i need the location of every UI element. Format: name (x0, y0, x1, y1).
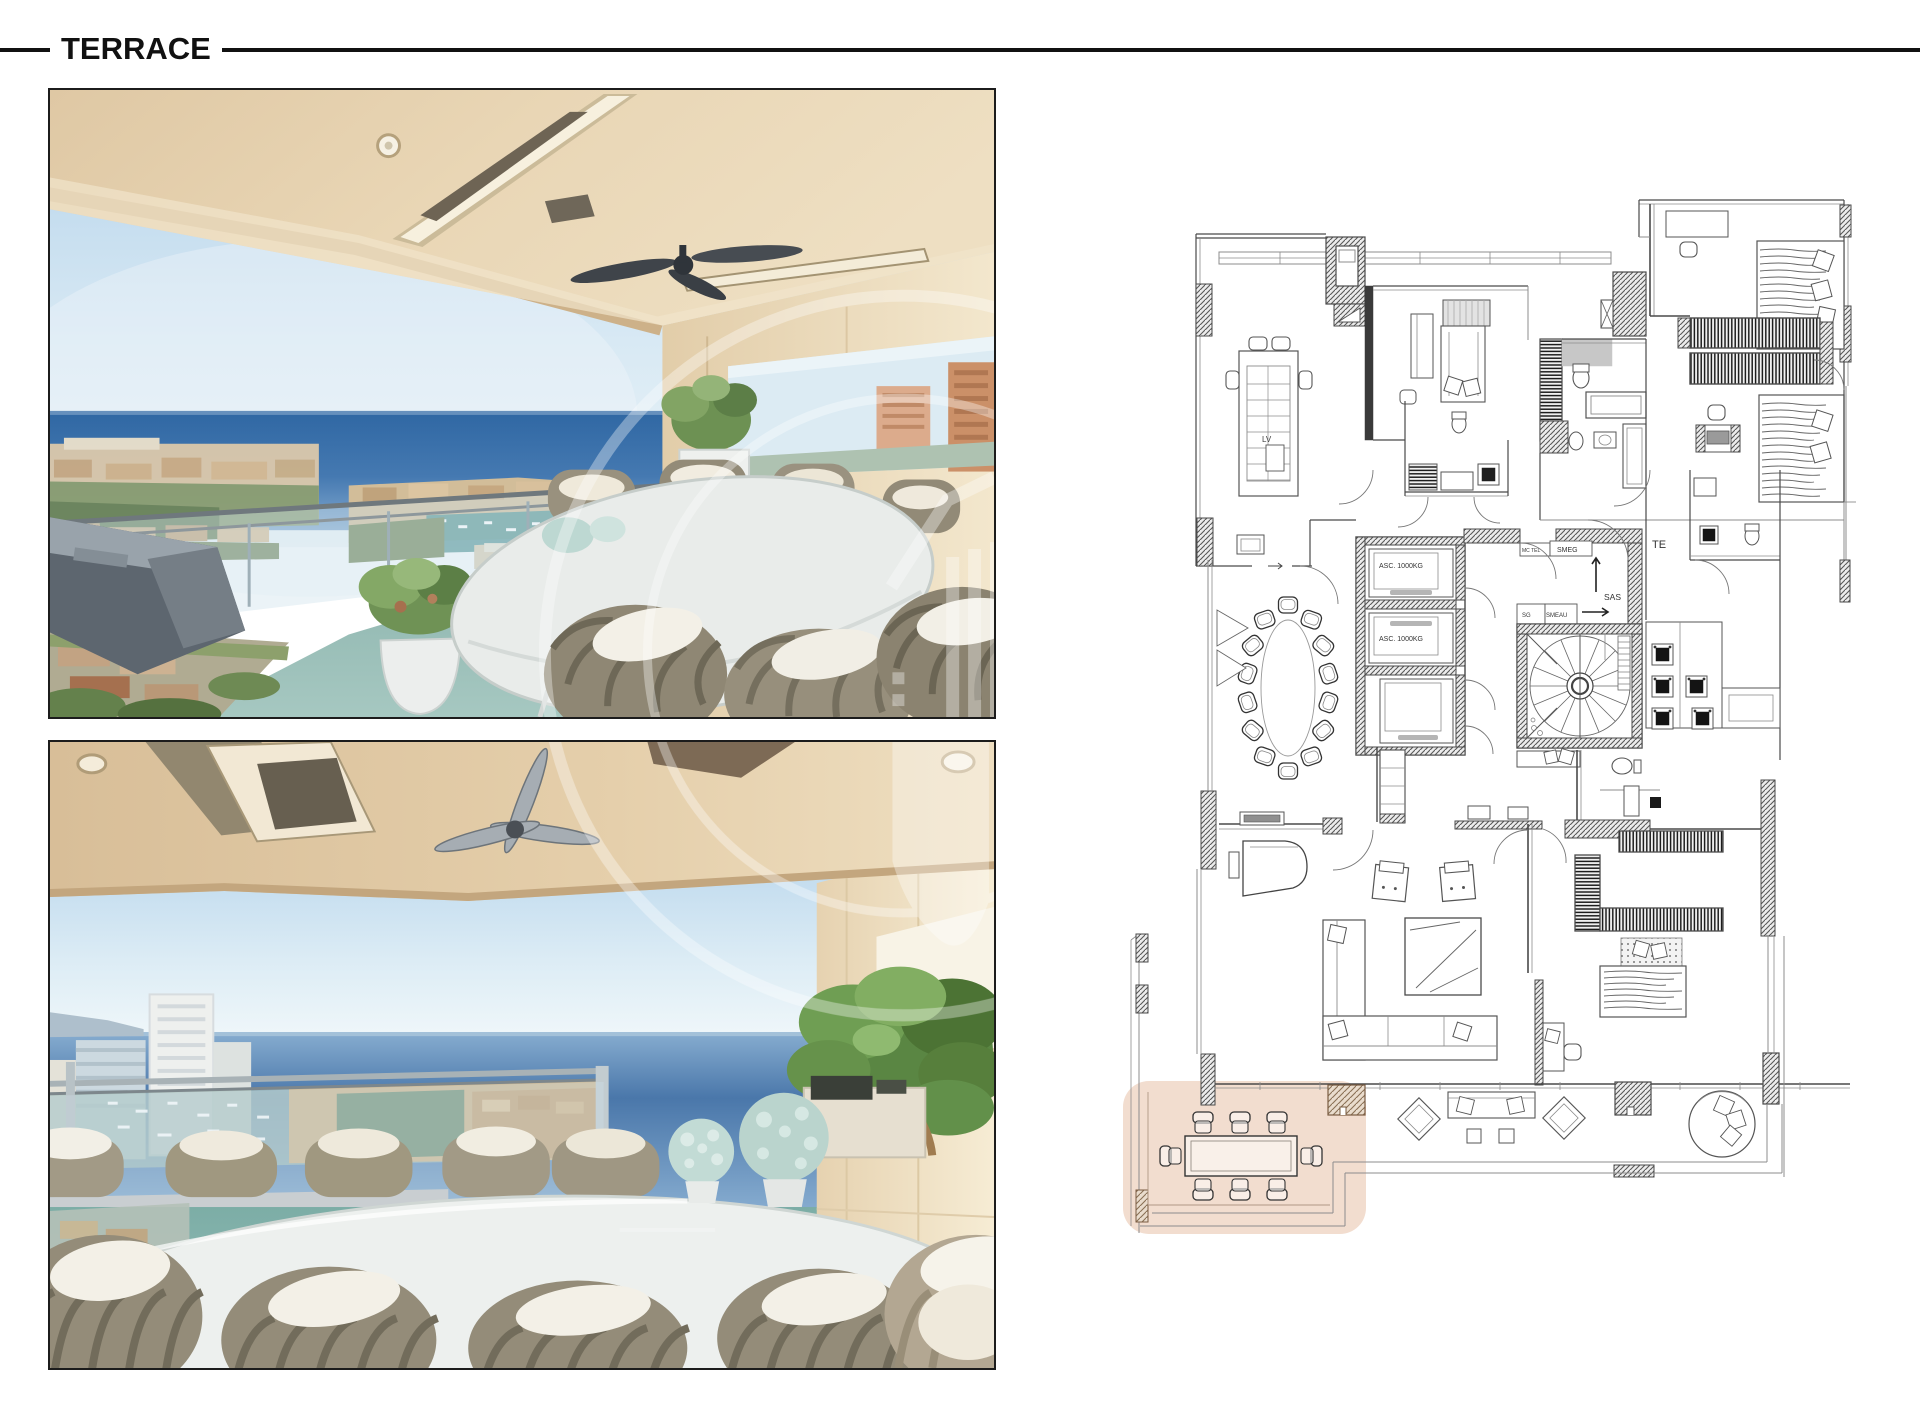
svg-text:SMEG: SMEG (1557, 547, 1578, 554)
svg-text:SMEAU: SMEAU (1546, 613, 1567, 619)
svg-text:SG: SG (1522, 613, 1531, 619)
svg-text:LV: LV (1262, 435, 1272, 444)
svg-text:TE: TE (1652, 539, 1666, 551)
svg-text:MC TEL: MC TEL (1522, 548, 1540, 554)
svg-text:ASC. 1000KG: ASC. 1000KG (1379, 636, 1423, 643)
svg-text:SAS: SAS (1604, 592, 1621, 602)
svg-text:ASC. 1000KG: ASC. 1000KG (1379, 563, 1423, 570)
